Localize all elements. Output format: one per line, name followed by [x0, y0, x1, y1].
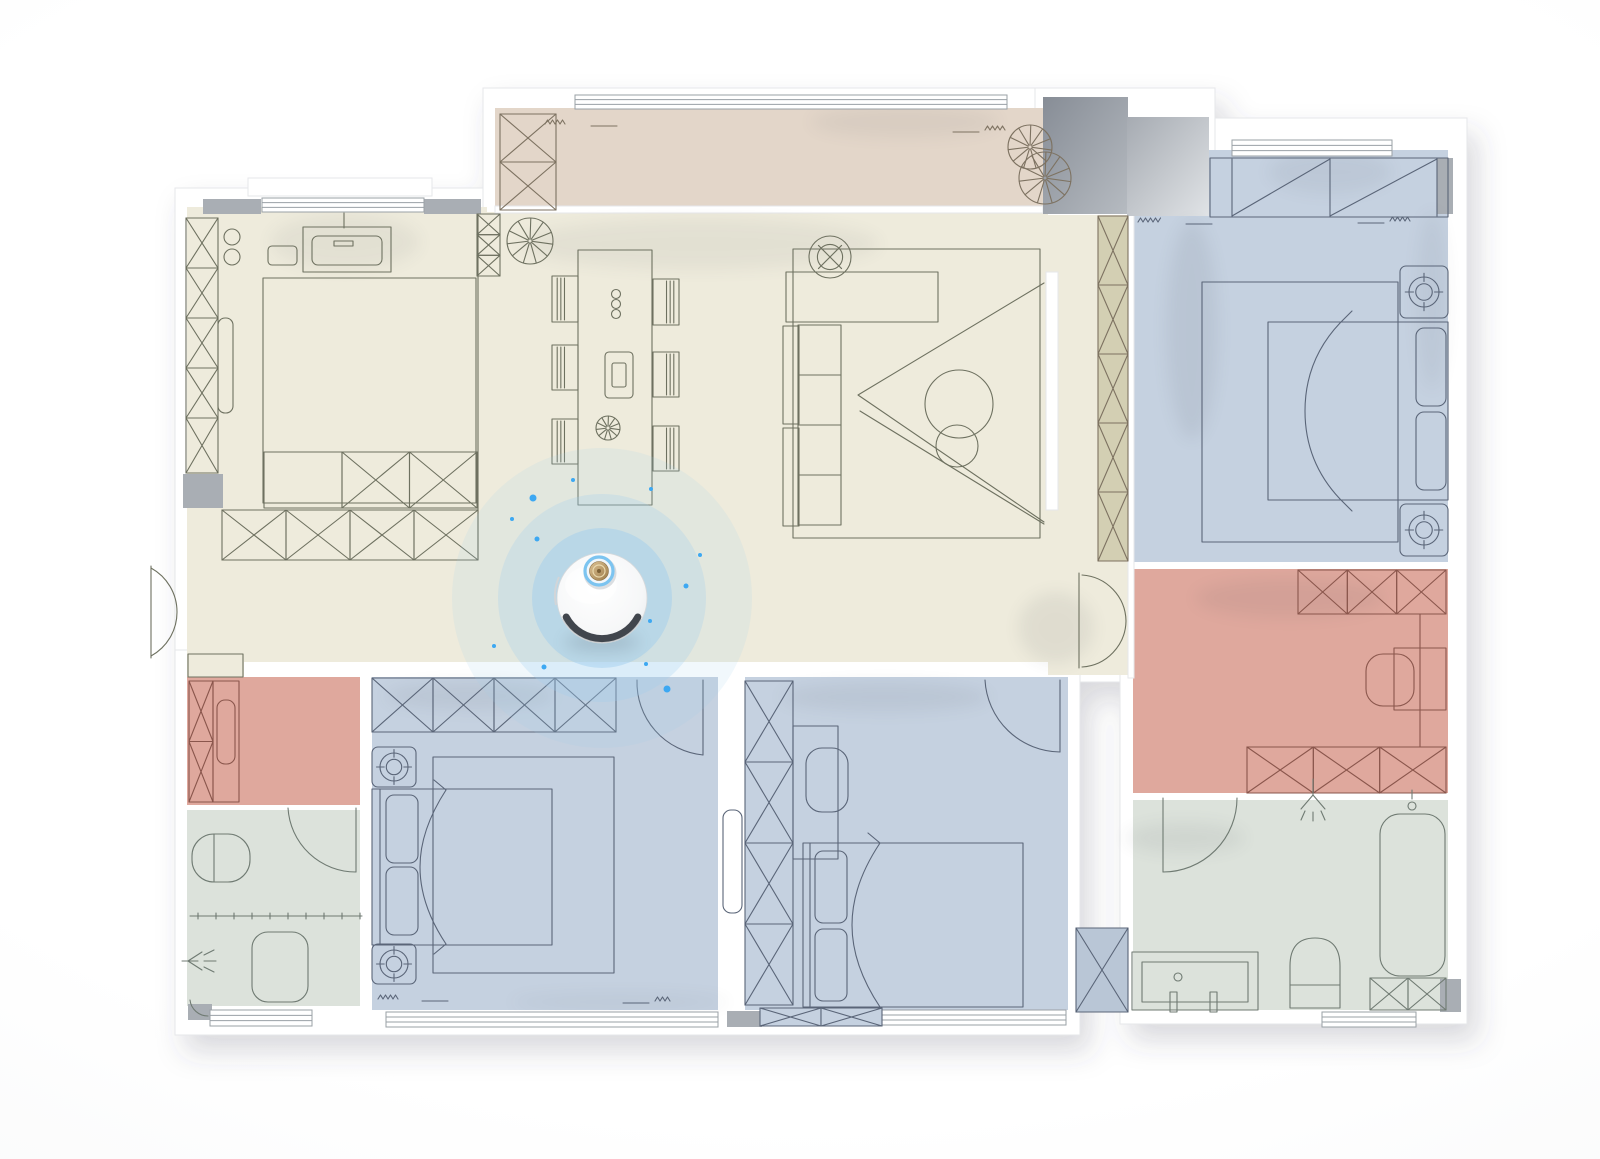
entry-door-arc	[151, 568, 177, 612]
floor-shading	[520, 218, 880, 270]
floor-plan-map	[0, 0, 1600, 1159]
floor-shading	[780, 682, 990, 712]
floor-shading	[1018, 592, 1094, 664]
wall-segment	[203, 199, 261, 214]
map-dot	[510, 517, 514, 521]
window	[386, 1012, 718, 1027]
map-dot	[664, 686, 671, 693]
corner-cabinet	[1076, 928, 1128, 1012]
map-dot	[530, 495, 537, 502]
window	[210, 1010, 312, 1026]
wall-segment	[1046, 272, 1058, 510]
map-dot	[648, 619, 652, 623]
robot-vacuum[interactable]	[452, 448, 752, 748]
sill-cabinets	[760, 1008, 882, 1026]
wall-segment	[1043, 97, 1128, 214]
wall-segment	[1128, 212, 1134, 678]
map-dot	[684, 584, 689, 589]
map-dot	[649, 487, 653, 491]
map-dot	[698, 553, 702, 557]
floor-shading	[1125, 822, 1245, 854]
window	[1232, 140, 1392, 156]
map-dot	[542, 665, 547, 670]
window	[575, 95, 1007, 109]
wall-segment	[248, 178, 432, 196]
window	[880, 1010, 1066, 1025]
entry-door-arc	[151, 612, 177, 656]
room-hallway[interactable]	[187, 655, 244, 677]
wall-segment	[183, 474, 223, 508]
floor-shading	[1166, 220, 1218, 440]
corridor-cabinet-column	[1098, 216, 1128, 561]
lidar-center	[597, 569, 601, 573]
wall-segment	[495, 206, 1043, 213]
wall-segment	[1437, 158, 1453, 214]
floor-shading	[510, 993, 730, 1011]
window	[262, 198, 424, 212]
map-dot	[535, 537, 540, 542]
wall-segment	[727, 1011, 762, 1027]
floor-shading	[810, 106, 1000, 138]
wall-segment	[424, 199, 481, 214]
room-bathroom-left[interactable]	[187, 810, 360, 1006]
floor-shading	[1195, 578, 1385, 618]
wall-segment	[1127, 117, 1209, 216]
map-dot	[571, 478, 575, 482]
floor-plan-stage	[0, 0, 1600, 1159]
map-dot	[492, 644, 496, 648]
map-dot	[644, 662, 648, 666]
floor-shading	[270, 214, 420, 270]
window	[1322, 1012, 1416, 1027]
